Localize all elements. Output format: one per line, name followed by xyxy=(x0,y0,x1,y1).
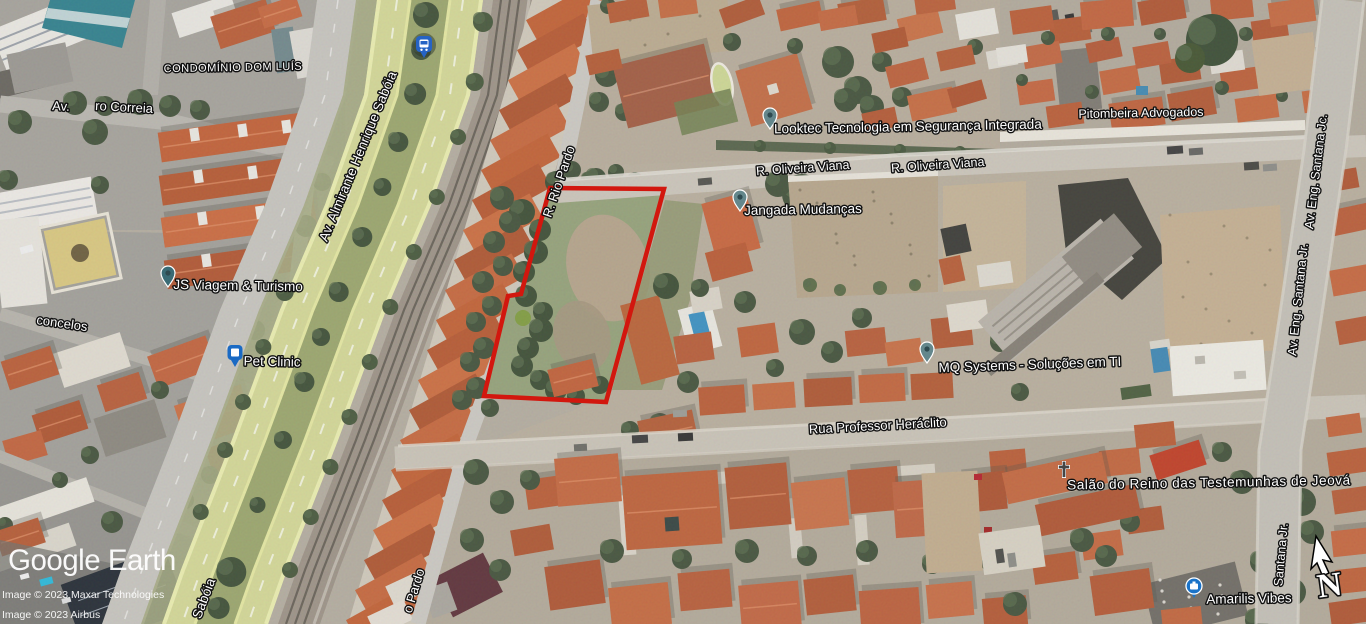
svg-text:CONDOMÍNIO DOM LUÍS: CONDOMÍNIO DOM LUÍS xyxy=(164,60,303,75)
svg-text:Amarilis Vibes: Amarilis Vibes xyxy=(1206,590,1292,606)
svg-text:Av.: Av. xyxy=(52,98,70,114)
svg-text:Pet Clinic: Pet Clinic xyxy=(243,354,301,370)
svg-text:JS Viagem & Turismo: JS Viagem & Turismo xyxy=(173,277,303,294)
svg-text:Image © 2023 Maxar Technologie: Image © 2023 Maxar Technologies xyxy=(2,589,164,601)
svg-text:ro Correia: ro Correia xyxy=(95,98,154,116)
svg-text:Jangada Mudanças: Jangada Mudanças xyxy=(744,201,862,218)
svg-text:Pitombeira Advogados: Pitombeira Advogados xyxy=(1078,105,1203,121)
svg-text:Google Earth: Google Earth xyxy=(8,544,176,577)
svg-text:Image © 2023 Airbus: Image © 2023 Airbus xyxy=(2,609,100,621)
